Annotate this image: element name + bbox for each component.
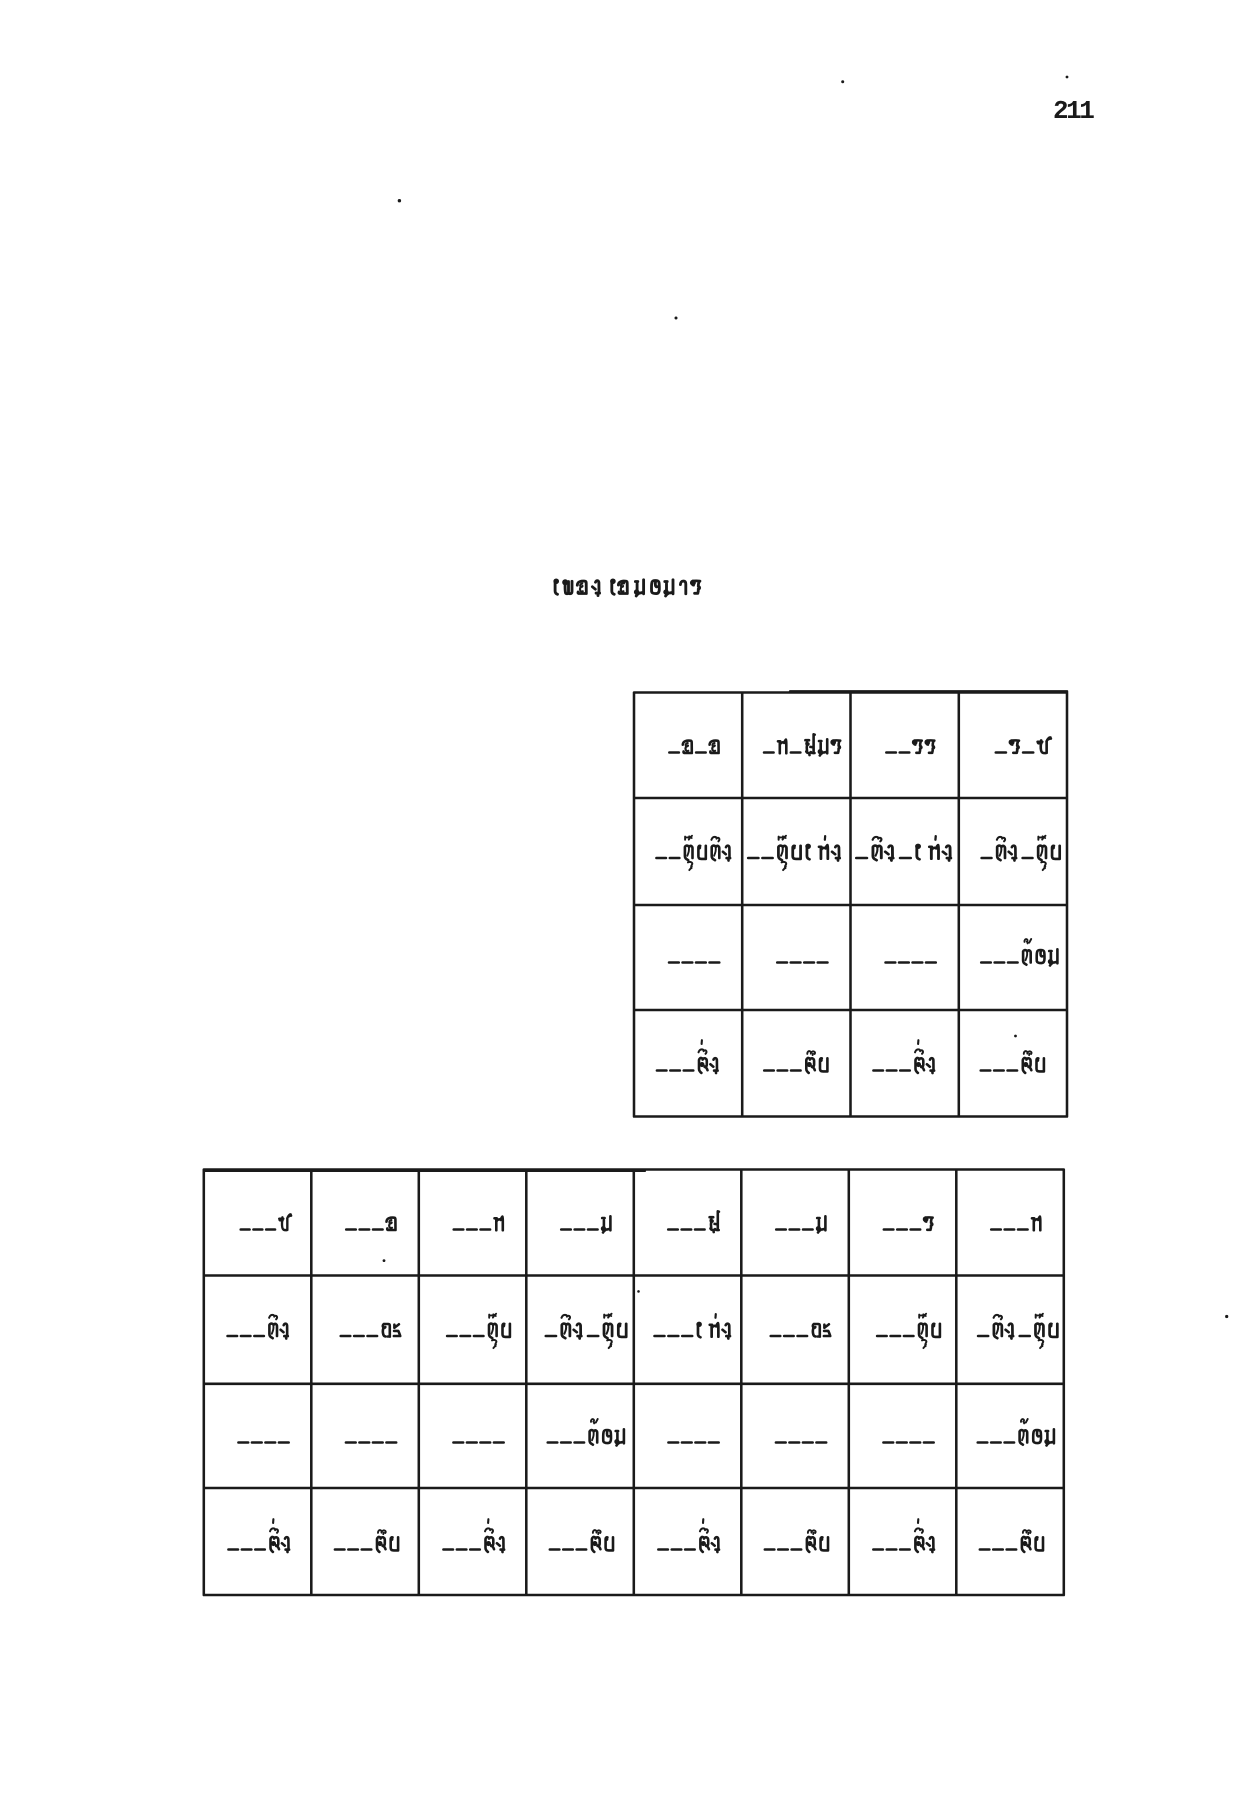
svg-text:211: 211 xyxy=(1053,96,1094,126)
